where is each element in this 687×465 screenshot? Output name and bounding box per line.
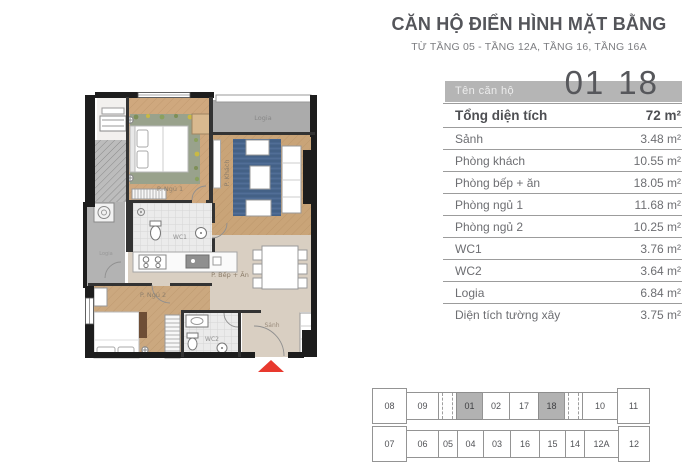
toilet: [150, 221, 161, 226]
key-plan-cell: 05: [438, 430, 458, 458]
label-kitchen: P. Bếp + Ăn: [211, 270, 249, 279]
row-value: 6.84 m²: [640, 286, 682, 300]
row-label: Tổng diện tích: [455, 108, 547, 123]
table-row: Phòng bếp + ăn 18.05 m²: [443, 171, 682, 193]
key-plan-cell: 06: [406, 430, 439, 458]
headboard-strip: [139, 312, 147, 338]
vanity: [186, 315, 208, 327]
key-plan-cell: 11: [617, 388, 650, 424]
row-value: 3.75 m²: [640, 308, 682, 322]
area-table: Tổng diện tích 72 m² Sảnh 3.48 m² Phòng …: [443, 103, 682, 325]
row-value: 3.76 m²: [640, 242, 682, 256]
row-value: 11.68 m²: [635, 198, 682, 212]
washing-machine: [94, 203, 114, 222]
dining-table: [262, 246, 298, 289]
key-plan-core-cell: [564, 392, 583, 420]
unit-numbers: 0118: [445, 66, 659, 100]
table-row: Logia 6.84 m²: [443, 281, 682, 303]
row-value: 3.64 m²: [640, 264, 682, 278]
key-plan-core-cell: [438, 392, 457, 420]
floor-plan-drawing: P. Ngủ 1 P. Khách Logia Logia WC1 P. Bếp…: [80, 86, 325, 378]
unit-number-right: 18: [618, 64, 659, 101]
key-plan-bottom-row: 07 06 05 04 03 16 15 14 12A 12: [372, 425, 650, 463]
row-label: Diện tích tường xây: [455, 308, 560, 322]
label-living: P. Khách: [223, 159, 231, 186]
label-wc1: WC1: [173, 234, 187, 241]
armchair: [246, 200, 271, 216]
row-value: 10.25 m²: [634, 220, 682, 234]
label-wc2: WC2: [205, 336, 219, 343]
key-plan-cell: 17: [509, 392, 539, 420]
label-bedroom1: P. Ngủ 1: [157, 185, 183, 193]
table-row: Diện tích tường xây 3.75 m²: [443, 303, 682, 325]
entrance-arrow: [258, 360, 284, 372]
key-plan-cell: 09: [406, 392, 439, 420]
page-title: CĂN HỘ ĐIỂN HÌNH MẶT BẰNG: [376, 14, 682, 35]
key-plan-cell-highlighted: 18: [538, 392, 565, 420]
tv-console: [214, 140, 221, 188]
table-row: Phòng ngủ 1 11.68 m²: [443, 193, 682, 215]
table-row: Sảnh 3.48 m²: [443, 127, 682, 149]
nightstand: [192, 114, 210, 134]
key-plan-cell: 10: [582, 392, 618, 420]
label-logia-left: Logia: [99, 251, 112, 257]
unit-number-left: 01: [565, 64, 606, 101]
row-value: 18.05 m²: [634, 176, 682, 190]
key-plan-cell: 04: [457, 430, 484, 458]
label-hall: Sảnh: [264, 322, 279, 329]
stove: [139, 255, 166, 269]
coffee-table: [250, 166, 270, 189]
key-plan-cell: 02: [482, 392, 510, 420]
page-subtitle: TỪ TẦNG 05 - TẦNG 12A, TẦNG 16, TẦNG 16A: [376, 41, 682, 53]
label-logia-top: Logia: [254, 114, 271, 122]
key-plan-cell: 12: [618, 426, 650, 462]
row-value: 10.55 m²: [634, 154, 682, 168]
pillow: [137, 151, 148, 168]
pillow: [137, 130, 148, 147]
dresser: [94, 288, 107, 306]
sink: [186, 255, 209, 268]
key-plan: 08 09 01 02 17 18 10 11 07 06 05 04 03 1…: [372, 387, 659, 464]
row-label: Phòng khách: [455, 154, 525, 168]
wardrobe: [165, 315, 180, 358]
toilet: [187, 333, 198, 338]
row-label: Sảnh: [455, 132, 483, 146]
armchair: [246, 140, 269, 155]
key-plan-cell-highlighted: 01: [456, 392, 483, 420]
row-value: 72 m²: [646, 108, 682, 123]
row-value: 3.48 m²: [640, 132, 682, 146]
key-plan-top-row: 08 09 01 02 17 18 10 11: [372, 387, 650, 425]
table-row: Phòng ngủ 2 10.25 m²: [443, 215, 682, 237]
table-row-total: Tổng diện tích 72 m²: [443, 103, 682, 127]
row-label: Phòng ngủ 1: [455, 198, 523, 212]
row-label: Phòng bếp + ăn: [455, 176, 540, 190]
key-plan-cell: 08: [372, 388, 407, 424]
label-bedroom2: P. Ngủ 2: [140, 291, 166, 299]
row-label: Logia: [455, 286, 484, 300]
table-row: WC2 3.64 m²: [443, 259, 682, 281]
key-plan-cell: 16: [510, 430, 540, 458]
key-plan-cell: 14: [565, 430, 585, 458]
row-label: WC1: [455, 242, 482, 256]
row-label: Phòng ngủ 2: [455, 220, 523, 234]
ac-unit: [102, 108, 124, 114]
key-plan-cell: 12A: [584, 430, 619, 458]
key-plan-cell: 03: [483, 430, 511, 458]
floor-plan-brochure-page: { "header": { "title": "CĂN HỘ ĐIỂN HÌNH…: [0, 0, 687, 465]
table-row: Phòng khách 10.55 m²: [443, 149, 682, 171]
row-label: WC2: [455, 264, 482, 278]
key-plan-cell: 15: [539, 430, 566, 458]
table-row: WC1 3.76 m²: [443, 237, 682, 259]
key-plan-cell: 07: [372, 426, 407, 462]
